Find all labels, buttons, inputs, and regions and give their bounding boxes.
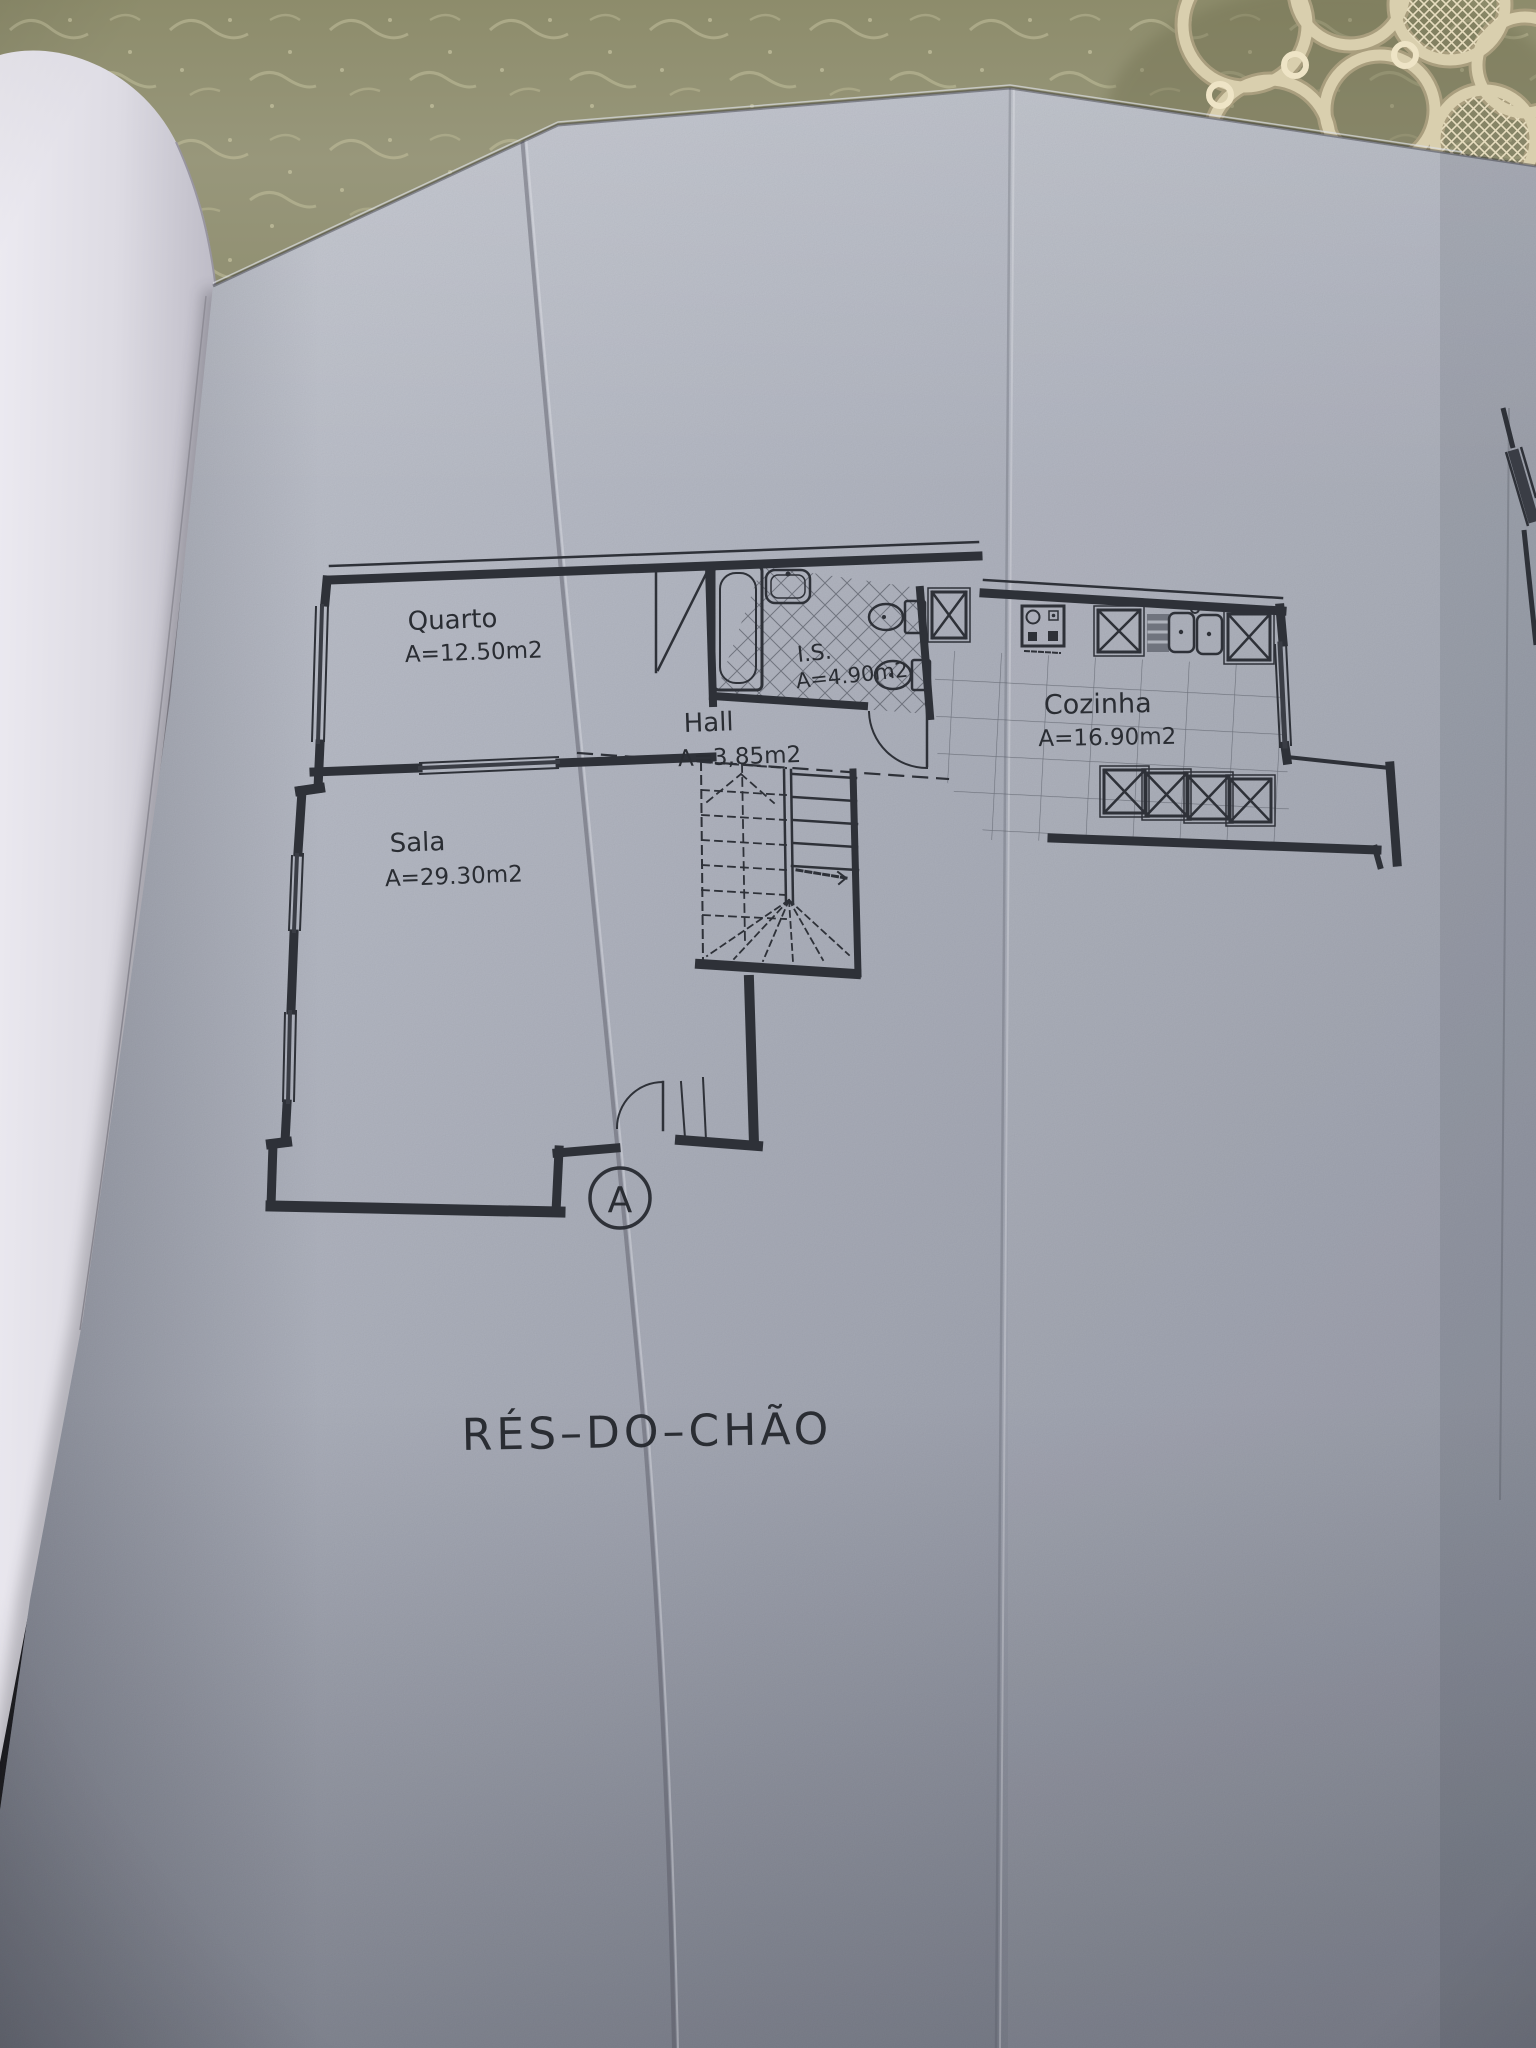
- photo-vignette: [0, 0, 1536, 2048]
- floor-plan-photo: A Quarto A=12.50m2 Sala A=29.30m2 Hall A…: [0, 0, 1536, 2048]
